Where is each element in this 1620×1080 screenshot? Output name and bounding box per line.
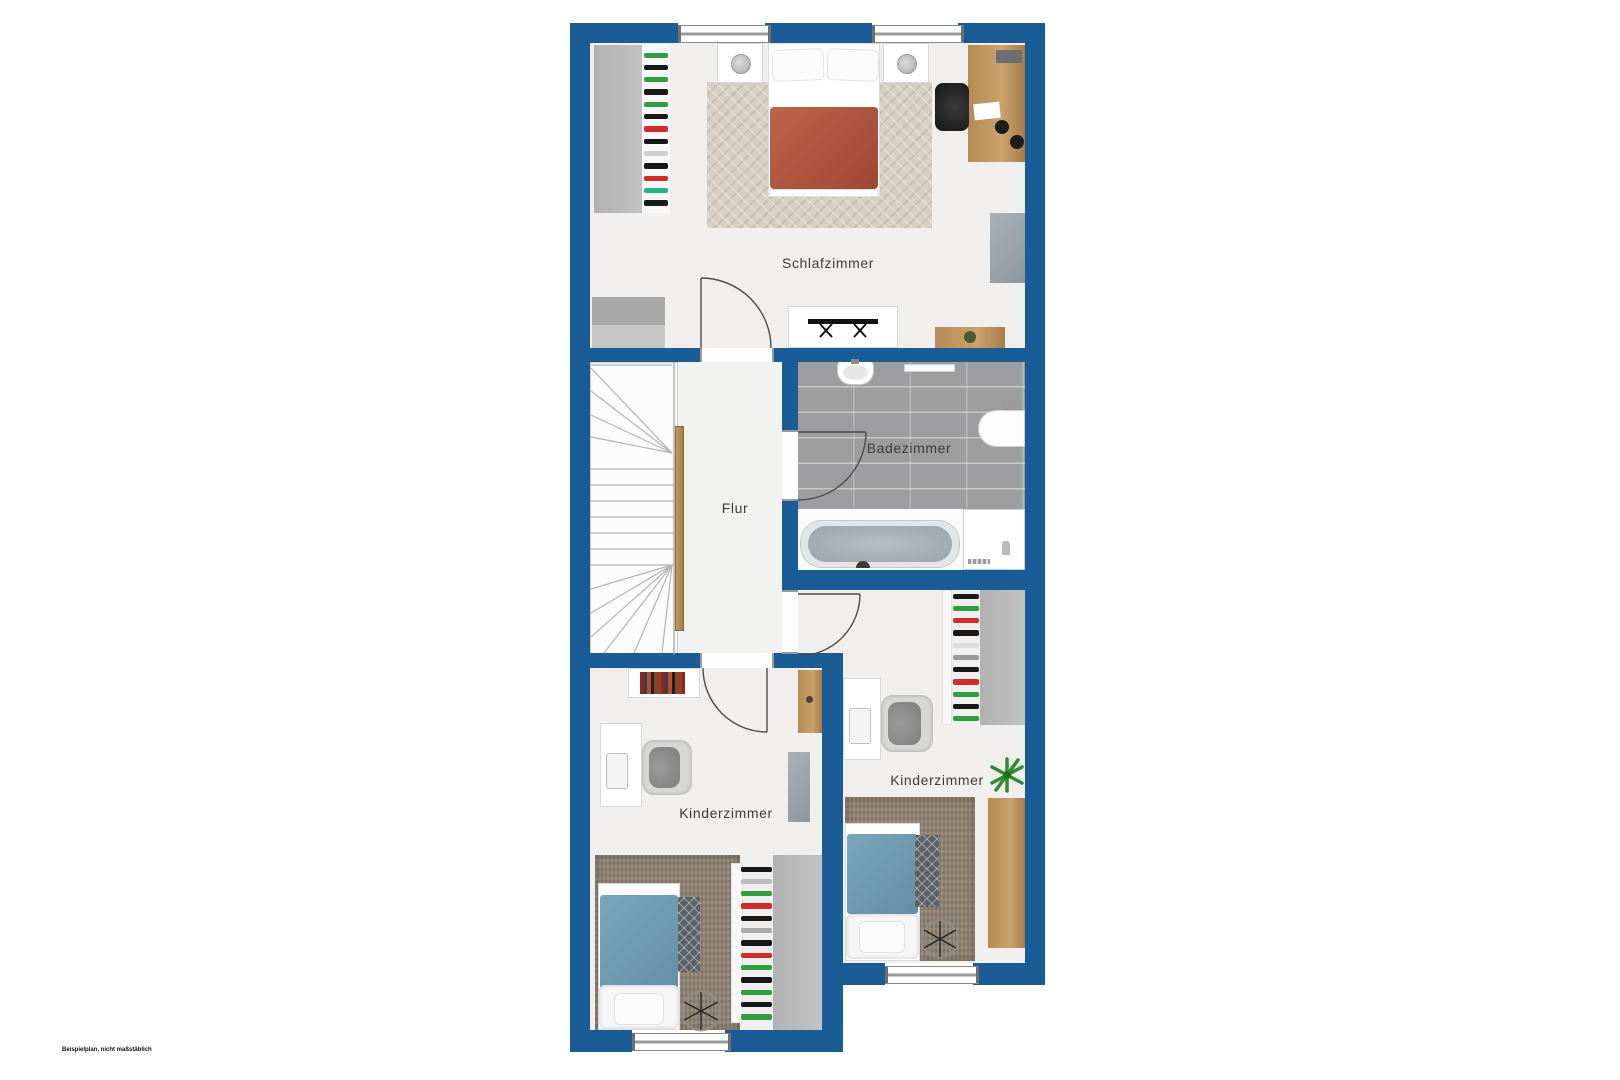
clothes-item [644,102,668,107]
clothes-item [953,679,979,684]
clothes-item [644,163,668,168]
kid-chair-right [881,695,933,752]
wood-board [988,798,1025,948]
clothes-item [953,606,979,611]
kinderzimmer-left-north-wall [570,653,700,668]
single-bed-right-duvet [847,834,918,914]
sideboard [592,297,665,348]
clothes-item [741,990,771,995]
room-label-flur: Flur [722,500,749,516]
kinderzimmer-right-south-wall [973,963,1045,985]
double-bed-footboard [770,189,878,197]
tv-console [788,306,898,348]
diamond-throw-left [678,897,700,972]
bathroom-sink-basin [843,365,868,380]
books-row [640,672,685,694]
clothes-item [741,953,771,958]
kid-chair-left [642,740,692,795]
clothes-item [741,977,771,982]
clothes-item [644,114,668,119]
door-opening-badezimmer [782,430,798,501]
clothes-item [953,716,979,721]
window-kinderzimmer-right [885,966,979,984]
clothes-item [741,879,771,884]
clothes-item [741,916,771,921]
door-opening-schlafzimmer [700,348,774,362]
door-opening-kinderzimmer-left [700,653,774,668]
kinderzimmer-left-south-wall [725,1030,843,1052]
kinderzimmer-right-south-wall [843,963,885,985]
desk-speaker-2 [1010,135,1024,149]
schlafzimmer-south-wall [590,348,700,362]
kinderzimmer-left-north-wall [770,653,822,668]
wardrobe-left-room [773,855,822,1030]
clothes-item [741,940,771,945]
clothes-item [644,188,668,193]
top-wall-segment [765,23,872,43]
toilet [978,410,1025,447]
bathtub-basin [808,526,952,562]
window-schlafzimmer-2 [872,25,964,43]
shelf-plant-icon [964,331,976,343]
pillow-left [771,48,824,82]
clothes-rail-strip-right [942,590,952,725]
bathroom-shelf [904,364,955,372]
floor-plan: Schlafzimmer Flur Badezimmer Kinderzimme… [570,23,1045,1052]
window-kinderzimmer-left [632,1033,731,1051]
clothes-item [644,139,668,144]
diamond-throw-right [915,835,939,907]
schlafzimmer-south-wall [770,348,1025,362]
clothes-item [953,692,979,697]
wardrobe-right-room [980,585,1025,725]
room-label-kinderzimmer-left: Kinderzimmer [679,805,773,821]
clothes-item [953,667,979,672]
toiletries-icon [1002,541,1010,555]
rug-right-wall [990,213,1025,283]
disclaimer-text: Beispielplan, nicht maßstäblich [62,1047,152,1053]
clothes-item [953,630,979,635]
office-chair [935,83,969,131]
pillow-right [826,48,879,82]
clothes-item [953,643,979,648]
desk-speaker-1 [995,120,1009,134]
closet-clothes [643,49,669,209]
clothes-item [644,65,668,70]
bathmat-icon [968,559,990,564]
clothes-item [953,704,979,709]
clothes-item [644,151,668,156]
clothes-item [644,126,668,131]
clothes-item [741,928,771,933]
clothes-item [644,77,668,82]
clothes-item [953,618,979,623]
badezimmer-south-wall [782,570,1045,590]
desk-paper [973,102,1001,121]
flur-bad-wall [782,362,798,430]
wall-mat-left-room [788,752,810,822]
lamp-left [731,54,751,74]
stair-handrail [675,426,684,631]
door-opening-kinderzimmer-right [782,590,798,654]
room-label-badezimmer: Badezimmer [867,440,952,456]
clothes-item [741,1002,771,1007]
clothes-item [644,89,668,94]
single-bed-left-duvet [600,895,678,995]
double-bed-duvet [770,107,878,189]
clothes-item [953,655,979,660]
clothes-item [644,53,668,58]
window-schlafzimmer-1 [678,25,771,43]
clothes-item [644,200,668,205]
left-wall [570,23,590,1030]
kid-desk-left-pad [606,753,628,789]
kid-desk-right-pad [849,708,871,744]
right-wall [1025,23,1045,985]
desk-monitor [996,50,1022,63]
room-label-kinderzimmer-right: Kinderzimmer [890,772,984,788]
clothes-item [741,965,771,970]
clothes-item [741,903,771,908]
clothes-item [953,594,979,599]
kinderzimmer-left-south-wall [570,1030,632,1052]
clothes-item [741,891,771,896]
single-bed-left-pillow [614,993,664,1025]
staircase [590,362,678,655]
bathtub-faucet [856,561,870,568]
lamp-right [897,54,917,74]
clothes-item [741,1014,771,1019]
mid-rooms-wall [822,653,843,1030]
single-bed-right-pillow [859,921,905,953]
wardrobe [594,45,642,213]
clothes-item [644,176,668,181]
room-label-schlafzimmer: Schlafzimmer [782,255,874,271]
dresser-knob [806,696,813,703]
clothes-right-room [952,590,980,725]
clothes-item [741,867,771,872]
clothes-left-room [740,863,773,1023]
